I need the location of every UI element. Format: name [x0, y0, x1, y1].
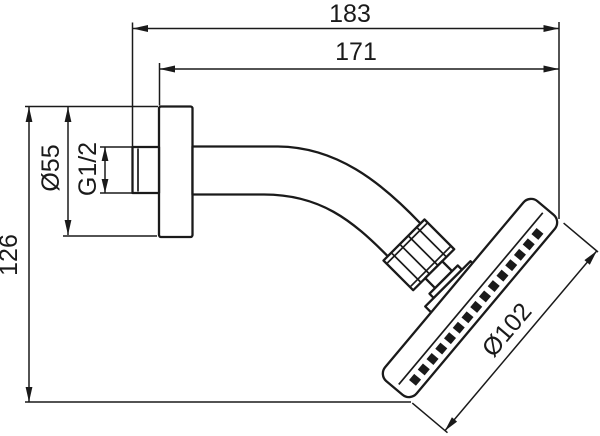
extension-line — [564, 223, 598, 252]
dimension-projection-from-plate: 171 — [160, 38, 560, 106]
arrowhead-left — [160, 66, 176, 73]
arrowhead-up — [65, 107, 72, 122]
shower-arm — [193, 147, 421, 257]
technical-drawing-canvas: 183 171 Ø55 G1/2 126 — [0, 0, 600, 436]
escutcheon-plate — [159, 107, 193, 238]
thread-fitting — [133, 147, 160, 193]
dimension-label-thread-size: G1/2 — [74, 142, 102, 196]
arrowhead-down — [102, 179, 109, 193]
arrowhead-down — [26, 387, 33, 402]
shower-head-dimension-drawing: 183 171 Ø55 G1/2 126 — [0, 0, 600, 436]
arrowhead-right — [544, 25, 560, 32]
dimension-label-height: 126 — [0, 234, 23, 276]
arrowhead-right — [544, 66, 560, 73]
arrowhead-down — [65, 220, 72, 235]
arrowhead-up — [102, 147, 109, 161]
dimension-label-plate-diameter: Ø55 — [37, 144, 65, 191]
dimension-label-total-projection: 183 — [329, 0, 371, 28]
extension-line — [412, 403, 447, 433]
dimension-thread-size: G1/2 — [74, 142, 132, 196]
arrowhead-left — [133, 25, 149, 32]
arrowhead-up — [26, 107, 33, 122]
dimension-label-projection-from-plate: 171 — [335, 38, 377, 66]
